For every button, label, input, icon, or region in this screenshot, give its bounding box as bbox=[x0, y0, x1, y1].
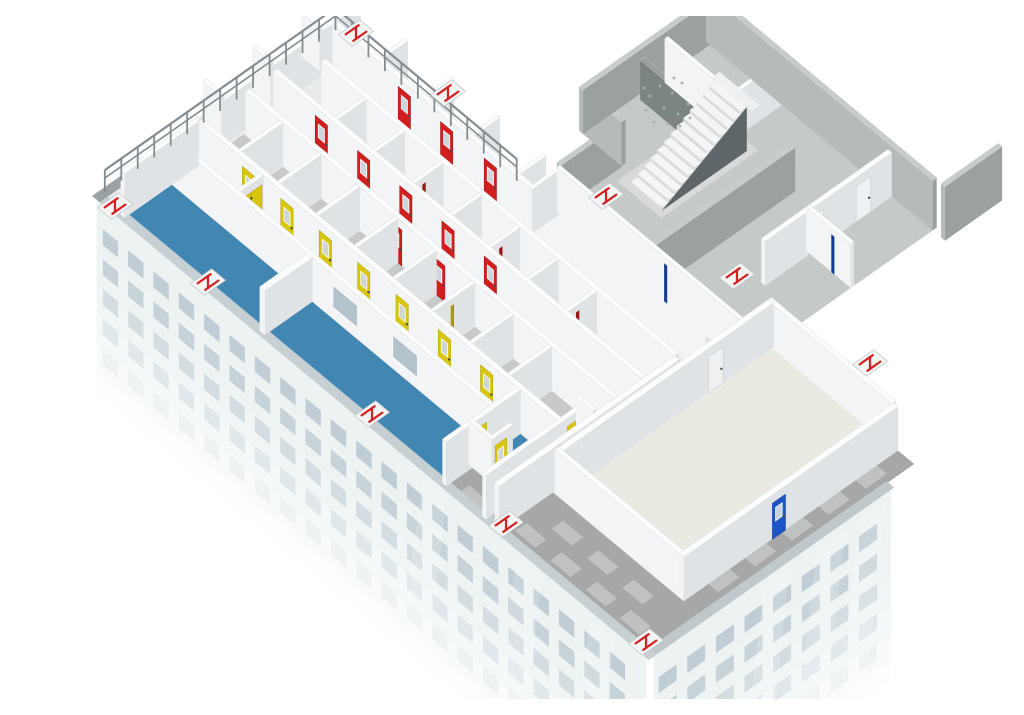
door-sliver-blu bbox=[831, 234, 834, 275]
floorplan-svg bbox=[40, 16, 1024, 699]
east-fin-wall bbox=[941, 143, 1002, 241]
door-sliver-blu bbox=[664, 263, 667, 304]
building-cutaway-render bbox=[40, 16, 1024, 699]
